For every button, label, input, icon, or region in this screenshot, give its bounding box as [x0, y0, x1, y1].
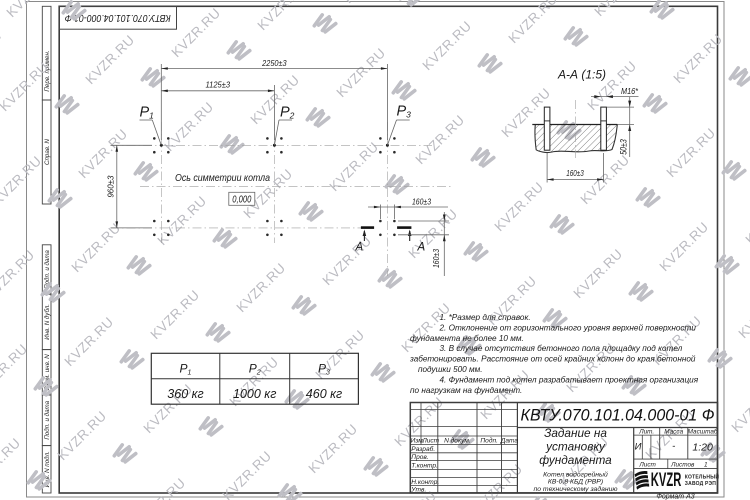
svg-text:P1: P1 [140, 105, 155, 121]
svg-text:фундамента: фундамента [539, 453, 612, 467]
svg-text:KVZR.RU: KVZR.RU [4, 0, 59, 20]
svg-text:Подп. и дата: Подп. и дата [44, 400, 51, 439]
svg-text:KVZR.RU: KVZR.RU [413, 112, 468, 167]
svg-text:KVZR.RU: KVZR.RU [743, 192, 750, 247]
svg-text:KVZR.RU: KVZR.RU [571, 246, 626, 301]
svg-text:-: - [672, 441, 675, 452]
svg-text:160±3: 160±3 [412, 198, 431, 207]
svg-text:KVZR.RU: KVZR.RU [162, 99, 217, 154]
svg-text:Разраб.: Разраб. [411, 445, 435, 453]
svg-text:А-А (1:5): А-А (1:5) [557, 68, 606, 82]
svg-text:забетонировать. Расстояние от: забетонировать. Расстояние от осей крайн… [409, 355, 696, 364]
svg-text:Лист: Лист [638, 461, 656, 468]
svg-text:P3: P3 [397, 104, 412, 120]
svg-text:И: И [635, 442, 642, 453]
svg-text:160±3: 160±3 [432, 249, 441, 268]
svg-text:1: 1 [704, 461, 708, 468]
svg-text:Лит.: Лит. [638, 428, 654, 435]
svg-text:1000 кг: 1000 кг [233, 387, 276, 401]
svg-text:0,000: 0,000 [232, 195, 251, 206]
svg-text:А: А [417, 242, 426, 254]
svg-text:Лист: Лист [421, 437, 439, 444]
svg-text:KVZR.RU: KVZR.RU [320, 233, 375, 288]
svg-text:960±3: 960±3 [106, 175, 116, 197]
svg-text:Инв. N дубл.: Инв. N дубл. [44, 304, 51, 340]
svg-text:KVZR.RU: KVZR.RU [327, 139, 382, 194]
svg-text:по нагрузкам на фундамент.: по нагрузкам на фундамент. [410, 386, 522, 395]
svg-text:КВ-0,8 КБД (РВР): КВ-0,8 КБД (РВР) [548, 479, 603, 486]
svg-text:KVZR.RU: KVZR.RU [420, 18, 475, 73]
svg-text:KVZR.RU: KVZR.RU [657, 219, 712, 274]
svg-text:360 кг: 360 кг [167, 387, 203, 401]
svg-text:Масса: Масса [664, 428, 683, 435]
svg-text:Задание на: Задание на [544, 426, 607, 440]
svg-text:Масштаб: Масштаб [688, 427, 718, 435]
svg-text:KVZR.RU: KVZR.RU [0, 153, 45, 208]
svg-text:KVZR.RU: KVZR.RU [148, 287, 203, 342]
svg-text:Утв.: Утв. [410, 487, 426, 494]
svg-text:P2: P2 [280, 105, 295, 121]
svg-text:по техническому заданию: по техническому заданию [534, 485, 618, 493]
svg-text:P1: P1 [180, 362, 192, 377]
svg-text:Пров.: Пров. [411, 454, 429, 461]
svg-text:KVZR.RU: KVZR.RU [0, 341, 31, 396]
svg-text:KVZR.RU: KVZR.RU [664, 125, 719, 180]
svg-text:Т.контр.: Т.контр. [411, 463, 438, 470]
svg-text:KVZR.RU: KVZR.RU [83, 32, 138, 87]
svg-text:160±3: 160±3 [566, 169, 584, 178]
svg-text:P2: P2 [249, 362, 261, 377]
svg-text:KVZR.RU: KVZR.RU [62, 314, 117, 369]
svg-text:М16*: М16* [621, 86, 639, 96]
svg-text:3. В случае отсутствия бетонн: 3. В случае отсутствия бетонного пола пл… [440, 344, 683, 353]
svg-text:Дата: Дата [500, 437, 519, 444]
svg-text:KVZR.RU: KVZR.RU [0, 435, 24, 490]
svg-text:1125±3: 1125±3 [206, 80, 231, 90]
svg-text:KVZR.RU: KVZR.RU [0, 247, 38, 302]
svg-text:KVZR.RU: KVZR.RU [334, 45, 389, 100]
svg-text:KVZR.RU: KVZR.RU [341, 0, 396, 6]
svg-text:KVZR.RU: KVZR.RU [69, 220, 124, 275]
svg-text:Формат А3: Формат А3 [656, 493, 694, 500]
svg-text:2250±3: 2250±3 [261, 58, 287, 68]
svg-text:Котел водогрейный: Котел водогрейный [543, 471, 608, 479]
svg-text:А: А [355, 242, 364, 254]
svg-text:KVZR.RU: KVZR.RU [234, 260, 289, 315]
svg-text:КОТЕЛЬНЫЙ: КОТЕЛЬНЫЙ [685, 473, 720, 481]
svg-text:KVZR.RU: KVZR.RU [255, 0, 310, 33]
svg-text:Н.контр.: Н.контр. [411, 479, 439, 486]
svg-text:KVZR.RU: KVZR.RU [155, 193, 210, 248]
svg-text:1. *Размер для справок.: 1. *Размер для справок. [440, 313, 531, 322]
svg-text:50±3: 50±3 [618, 139, 628, 155]
svg-text:460 кг: 460 кг [306, 387, 342, 401]
svg-text:Подп.: Подп. [480, 436, 498, 444]
svg-text:Листов: Листов [670, 461, 695, 468]
svg-text:KVZR.RU: KVZR.RU [55, 408, 110, 463]
svg-text:фундамента не более 10 мм.: фундамента не более 10 мм. [410, 334, 524, 343]
svg-text:KVZR.RU: KVZR.RU [134, 475, 189, 500]
svg-text:KVZR.RU: KVZR.RU [729, 380, 750, 435]
svg-text:Справ. N: Справ. N [44, 139, 51, 165]
svg-text:N докум.: N докум. [444, 436, 471, 444]
svg-text:4. Фундамент под котел разраб: 4. Фундамент под котел разрабатывает про… [440, 375, 699, 384]
svg-text:подушки 500 мм.: подушки 500 мм. [418, 365, 483, 374]
svg-text:KVZR.RU: KVZR.RU [492, 179, 547, 234]
svg-text:КВТУ.070.101.04.000-01 Ф: КВТУ.070.101.04.000-01 Ф [521, 407, 715, 425]
svg-text:ЗАВОД РЭП: ЗАВОД РЭП [685, 481, 716, 487]
svg-text:Ось симметрии котла: Ось симметрии котла [175, 173, 270, 184]
svg-text:2. Отклонение от горизонтальн: 2. Отклонение от горизонтального уровня … [439, 323, 697, 332]
svg-text:KVZR.RU: KVZR.RU [592, 0, 647, 19]
svg-text:1:20: 1:20 [692, 442, 713, 454]
svg-text:установку: установку [545, 440, 606, 454]
svg-text:KVZR.RU: KVZR.RU [736, 286, 750, 341]
svg-text:KVZR: KVZR [651, 469, 682, 491]
svg-text:KVZR.RU: KVZR.RU [306, 421, 361, 476]
svg-text:KVZR.RU: KVZR.RU [76, 126, 131, 181]
